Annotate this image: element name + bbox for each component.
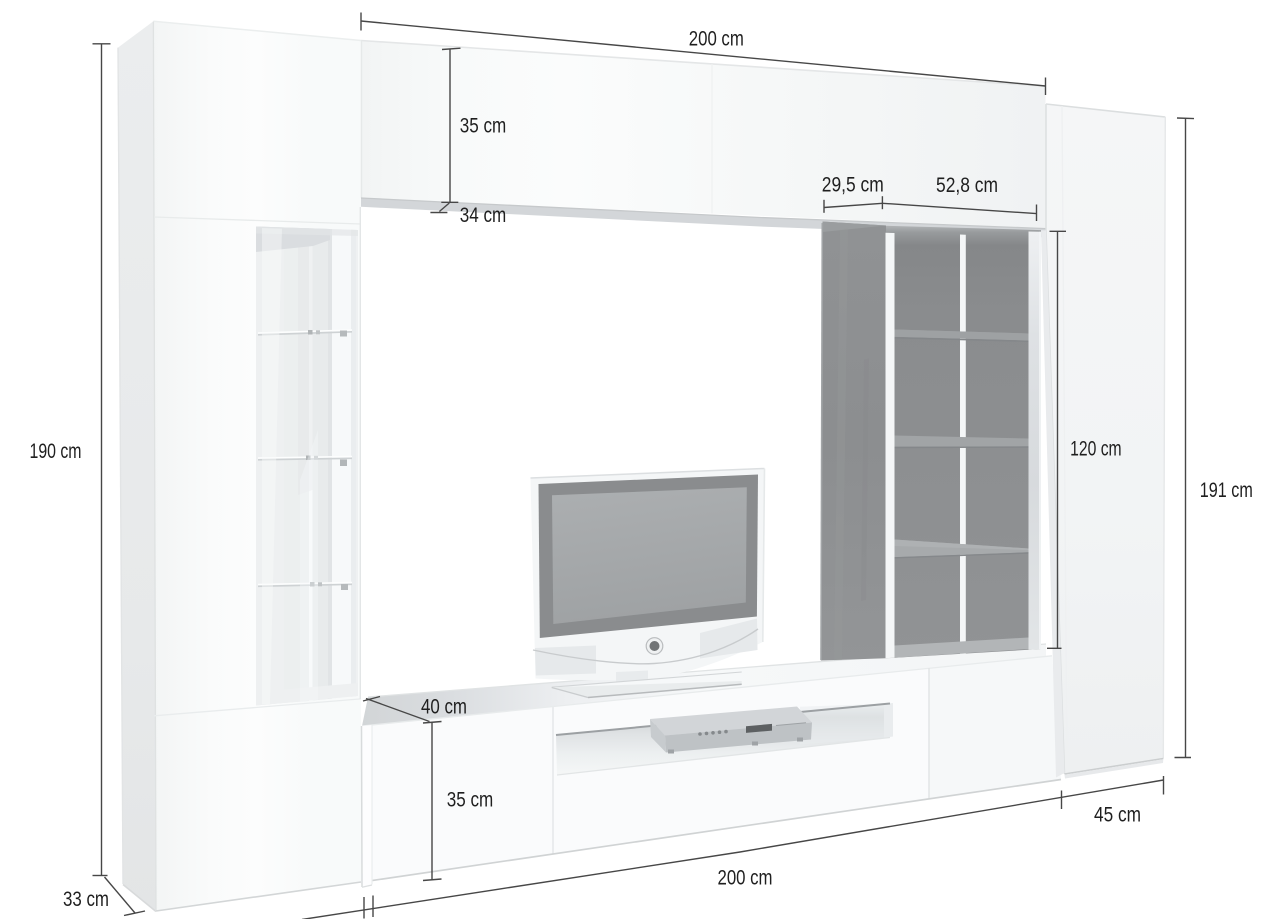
- svg-text:52,8 cm: 52,8 cm: [936, 173, 998, 197]
- svg-text:45 cm: 45 cm: [1094, 803, 1141, 827]
- svg-text:33 cm: 33 cm: [63, 887, 109, 911]
- svg-text:34 cm: 34 cm: [460, 203, 507, 227]
- svg-text:35 cm: 35 cm: [447, 788, 494, 812]
- svg-text:29,5 cm: 29,5 cm: [822, 173, 884, 197]
- svg-text:35 cm: 35 cm: [460, 114, 507, 138]
- svg-text:200 cm: 200 cm: [718, 866, 773, 890]
- svg-text:191 cm: 191 cm: [1200, 478, 1253, 502]
- svg-text:40 cm: 40 cm: [421, 695, 467, 719]
- svg-text:190 cm: 190 cm: [30, 439, 82, 463]
- svg-text:200 cm: 200 cm: [689, 26, 744, 50]
- svg-text:120 cm: 120 cm: [1070, 437, 1122, 461]
